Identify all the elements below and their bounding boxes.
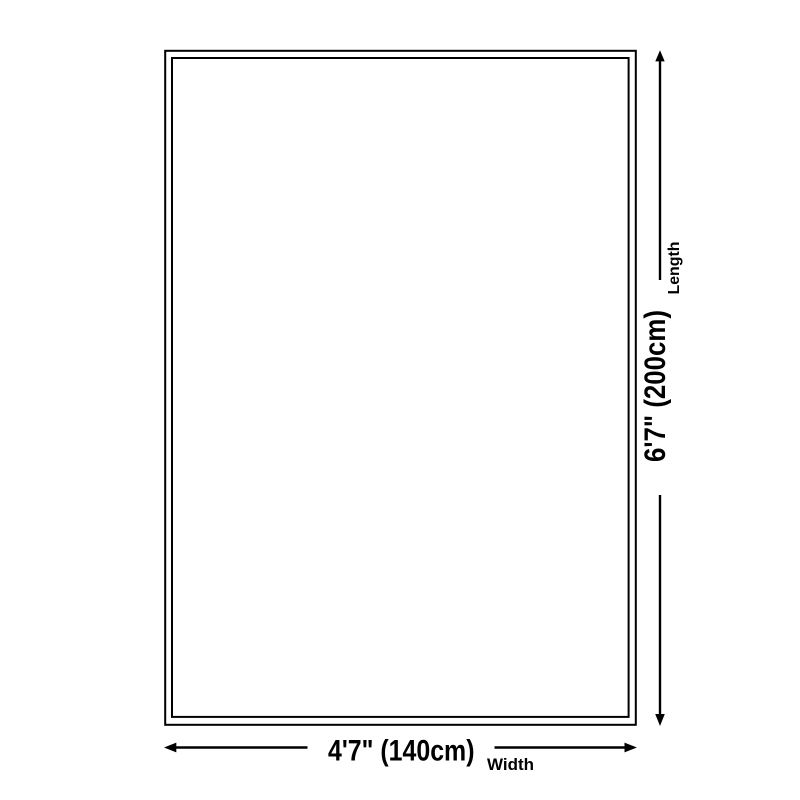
svg-text:4'7" (140cm): 4'7" (140cm) [328,735,475,768]
svg-text:Length: Length [666,242,683,295]
svg-text:6'7" (200cm): 6'7" (200cm) [639,310,672,462]
svg-text:Width: Width [487,755,534,774]
